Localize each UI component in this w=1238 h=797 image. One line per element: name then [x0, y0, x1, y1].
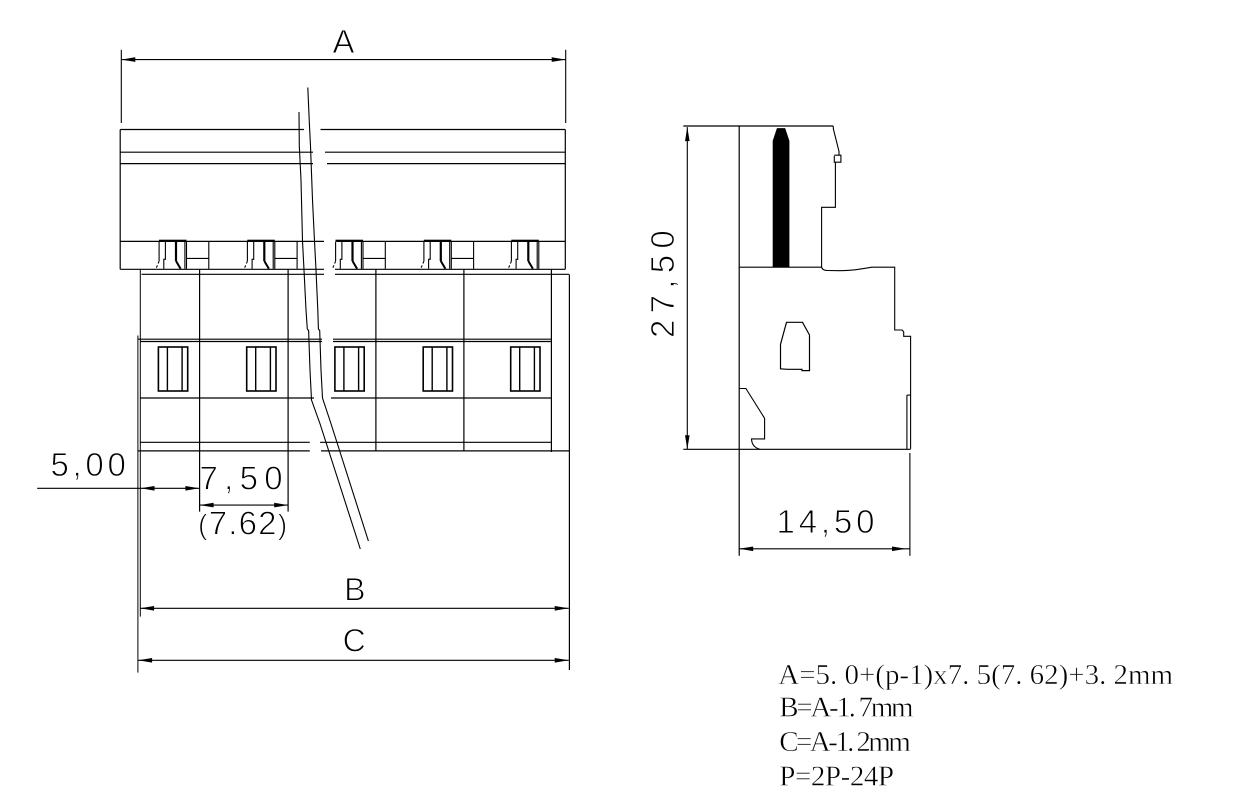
svg-text:B: B — [344, 572, 365, 608]
svg-text:7,50: 7,50 — [200, 460, 289, 497]
svg-text:(7.62): (7.62) — [198, 505, 288, 542]
svg-text:C: C — [343, 623, 366, 659]
svg-text:A=5. 0+(p-1)x7. 5(7. 62)+3. 2m: A=5. 0+(p-1)x7. 5(7. 62)+3. 2mm — [778, 659, 1173, 691]
svg-text:P=2P-24P: P=2P-24P — [779, 761, 893, 793]
svg-text:27,50: 27,50 — [644, 224, 681, 338]
svg-text:5,00: 5,00 — [51, 446, 130, 483]
svg-text:C=A-1. 2mm: C=A-1. 2mm — [779, 726, 911, 758]
svg-text:B=A-1. 7mm: B=A-1. 7mm — [779, 692, 914, 724]
svg-text:A: A — [332, 23, 354, 60]
svg-text:14,50: 14,50 — [777, 503, 879, 540]
